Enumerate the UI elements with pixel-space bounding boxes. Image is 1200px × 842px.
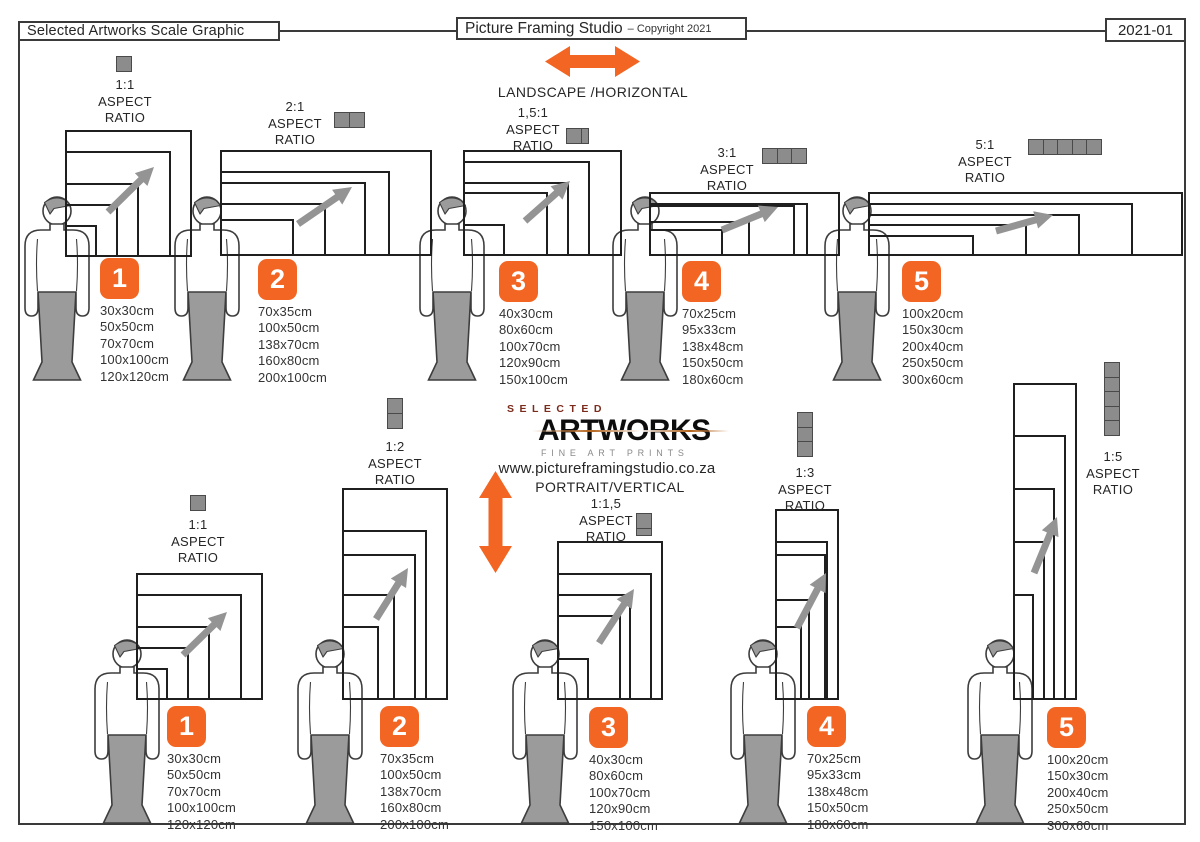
aspect-ratio-icon — [1028, 139, 1102, 155]
size-label: 300x60cm — [1047, 818, 1109, 834]
aspect-ratio-label: 1:1ASPECTRATIO — [60, 77, 190, 127]
size-label: 100x50cm — [258, 320, 327, 336]
size-label: 138x70cm — [258, 337, 327, 353]
size-label: 250x50cm — [1047, 801, 1109, 817]
frame-rect — [65, 225, 97, 257]
size-label: 70x70cm — [100, 336, 169, 352]
frame-rect — [775, 626, 802, 700]
size-label: 50x50cm — [167, 767, 236, 783]
aspect-ratio-label: 1:2ASPECTRATIO — [330, 439, 460, 489]
group-number-badge: 3 — [499, 261, 538, 302]
frame-rect — [342, 626, 379, 700]
aspect-word-label: ASPECT — [60, 94, 190, 111]
landscape-arrow-icon — [545, 46, 640, 77]
size-label: 150x50cm — [807, 800, 869, 816]
ratio-icon-cell — [791, 148, 807, 164]
logo-subtitle: FINE ART PRINTS — [541, 449, 725, 458]
size-label: 80x60cm — [589, 768, 658, 784]
size-label: 150x30cm — [1047, 768, 1109, 784]
size-list: 30x30cm50x50cm70x70cm100x100cm120x120cm — [167, 751, 236, 833]
frame-rect — [868, 235, 974, 256]
size-list: 70x25cm95x33cm138x48cm150x50cm180x60cm — [682, 306, 744, 388]
aspect-ratio-icon — [636, 513, 652, 536]
size-label: 40x30cm — [499, 306, 568, 322]
size-label: 70x35cm — [380, 751, 449, 767]
size-label: 250x50cm — [902, 355, 964, 371]
size-label: 100x70cm — [499, 339, 568, 355]
size-label: 160x80cm — [380, 800, 449, 816]
group-number-badge: 4 — [682, 261, 721, 302]
ratio-word-label: RATIO — [740, 498, 870, 515]
doc-code-box: 2021-01 — [1105, 18, 1186, 42]
ratio-word-label: RATIO — [330, 472, 460, 489]
size-label: 95x33cm — [682, 322, 744, 338]
frame-rect — [220, 219, 294, 256]
ratio-word-label: RATIO — [662, 178, 792, 195]
portrait-arrow-icon — [479, 471, 512, 573]
ratio-value-label: 1:1 — [133, 517, 263, 534]
scale-graphic-page: Selected Artworks Scale Graphic Picture … — [0, 0, 1200, 842]
size-label: 70x25cm — [682, 306, 744, 322]
ratio-word-label: RATIO — [60, 110, 190, 127]
size-label: 120x90cm — [589, 801, 658, 817]
ratio-icon-cell — [190, 495, 206, 511]
ratio-icon-cell — [349, 112, 365, 128]
size-label: 100x100cm — [167, 800, 236, 816]
size-label: 70x25cm — [807, 751, 869, 767]
ratio-word-label: RATIO — [920, 170, 1050, 187]
size-label: 100x20cm — [1047, 752, 1109, 768]
size-label: 100x50cm — [380, 767, 449, 783]
frame-rect — [136, 668, 168, 700]
ratio-value-label: 1:1,5 — [541, 496, 671, 513]
group-number-badge: 2 — [258, 259, 297, 300]
size-label: 120x90cm — [499, 355, 568, 371]
aspect-ratio-icon — [116, 56, 132, 72]
group-number-badge: 2 — [380, 706, 419, 747]
studio-title: Picture Framing Studio — [465, 20, 623, 38]
size-list: 70x35cm100x50cm138x70cm160x80cm200x100cm — [258, 304, 327, 386]
aspect-ratio-label: 1:5ASPECTRATIO — [1048, 449, 1178, 499]
aspect-word-label: ASPECT — [133, 534, 263, 551]
size-label: 150x30cm — [902, 322, 964, 338]
size-list: 70x35cm100x50cm138x70cm160x80cm200x100cm — [380, 751, 449, 833]
size-label: 50x50cm — [100, 319, 169, 335]
frame-rect — [463, 224, 505, 256]
size-list: 40x30cm80x60cm100x70cm120x90cm150x100cm — [499, 306, 568, 388]
size-label: 30x30cm — [167, 751, 236, 767]
aspect-ratio-label: 1:3ASPECTRATIO — [740, 465, 870, 515]
size-list: 30x30cm50x50cm70x70cm100x100cm120x120cm — [100, 303, 169, 385]
group-number-badge: 1 — [100, 258, 139, 299]
size-list: 100x20cm150x30cm200x40cm250x50cm300x60cm — [1047, 752, 1109, 834]
size-label: 180x60cm — [682, 372, 744, 388]
aspect-ratio-icon — [1104, 362, 1120, 436]
size-label: 70x35cm — [258, 304, 327, 320]
aspect-word-label: ASPECT — [920, 154, 1050, 171]
size-list: 70x25cm95x33cm138x48cm150x50cm180x60cm — [807, 751, 869, 833]
size-label: 138x70cm — [380, 784, 449, 800]
ratio-icon-cell — [1104, 420, 1120, 436]
aspect-ratio-icon — [190, 495, 206, 511]
size-label: 95x33cm — [807, 767, 869, 783]
ratio-icon-cell — [797, 441, 813, 457]
ratio-value-label: 1:5 — [1048, 449, 1178, 466]
size-label: 120x120cm — [167, 817, 236, 833]
size-label: 138x48cm — [807, 784, 869, 800]
aspect-ratio-icon — [797, 412, 813, 457]
frame-rect — [649, 229, 723, 256]
aspect-word-label: ASPECT — [740, 482, 870, 499]
ratio-word-label: RATIO — [230, 132, 360, 149]
frame-rect — [1013, 594, 1034, 700]
ratio-icon-cell — [636, 528, 652, 536]
logo-artworks: ARTWORKS — [538, 416, 725, 446]
studio-logo: SELECTED ARTWORKS FINE ART PRINTS — [505, 404, 725, 458]
landscape-label: LANDSCAPE /HORIZONTAL — [443, 84, 743, 100]
ratio-icon-cell — [387, 413, 403, 429]
aspect-ratio-icon — [762, 148, 807, 164]
size-label: 200x40cm — [1047, 785, 1109, 801]
frame-rect — [557, 658, 589, 700]
ratio-icon-cell — [581, 128, 589, 144]
group-number-badge: 1 — [167, 706, 206, 747]
size-label: 120x120cm — [100, 369, 169, 385]
size-list: 40x30cm80x60cm100x70cm120x90cm150x100cm — [589, 752, 658, 834]
size-label: 200x100cm — [380, 817, 449, 833]
size-label: 150x50cm — [682, 355, 744, 371]
aspect-ratio-label: 1:1ASPECTRATIO — [133, 517, 263, 567]
group-number-badge: 5 — [902, 261, 941, 302]
ratio-icon-cell — [116, 56, 132, 72]
size-label: 30x30cm — [100, 303, 169, 319]
ratio-word-label: RATIO — [133, 550, 263, 567]
aspect-word-label: ASPECT — [1048, 466, 1178, 483]
ratio-value-label: 1:2 — [330, 439, 460, 456]
page-title-box: Selected Artworks Scale Graphic — [18, 21, 280, 41]
page-title: Selected Artworks Scale Graphic — [27, 23, 244, 39]
size-label: 160x80cm — [258, 353, 327, 369]
size-list: 100x20cm150x30cm200x40cm250x50cm300x60cm — [902, 306, 964, 388]
ratio-value-label: 1,5:1 — [468, 105, 598, 122]
size-label: 180x60cm — [807, 817, 869, 833]
size-label: 70x70cm — [167, 784, 236, 800]
ratio-value-label: 1:3 — [740, 465, 870, 482]
studio-title-box: Picture Framing Studio – Copyright 2021 — [456, 17, 747, 40]
size-label: 40x30cm — [589, 752, 658, 768]
group-number-badge: 4 — [807, 706, 846, 747]
size-label: 200x100cm — [258, 370, 327, 386]
ratio-icon-cell — [1086, 139, 1102, 155]
size-label: 200x40cm — [902, 339, 964, 355]
size-label: 100x70cm — [589, 785, 658, 801]
copyright-text: – Copyright 2021 — [628, 23, 712, 35]
size-label: 100x20cm — [902, 306, 964, 322]
size-label: 100x100cm — [100, 352, 169, 368]
aspect-ratio-icon — [387, 398, 403, 429]
ratio-word-label: RATIO — [1048, 482, 1178, 499]
size-label: 138x48cm — [682, 339, 744, 355]
aspect-ratio-icon — [334, 112, 365, 128]
aspect-word-label: ASPECT — [330, 456, 460, 473]
size-label: 150x100cm — [499, 372, 568, 388]
size-label: 80x60cm — [499, 322, 568, 338]
group-number-badge: 5 — [1047, 707, 1086, 748]
ratio-value-label: 1:1 — [60, 77, 190, 94]
doc-code: 2021-01 — [1118, 22, 1173, 39]
group-number-badge: 3 — [589, 707, 628, 748]
size-label: 150x100cm — [589, 818, 658, 834]
size-label: 300x60cm — [902, 372, 964, 388]
aspect-ratio-icon — [566, 128, 589, 144]
